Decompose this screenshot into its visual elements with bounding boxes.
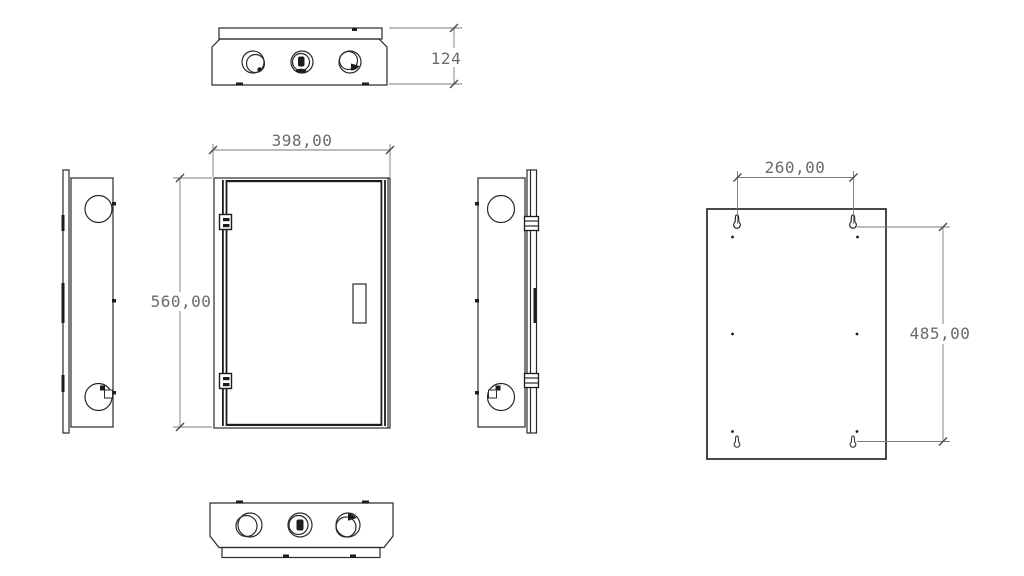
edge-tab <box>475 391 479 395</box>
dim-width: 398,00 <box>209 131 394 177</box>
dim-depth: 124 <box>389 24 463 88</box>
knockout-hole-right <box>336 513 360 537</box>
left-side-view <box>62 170 117 433</box>
side-hole-top <box>85 196 112 223</box>
drawing-canvas: 124 398,00 <box>0 0 1024 576</box>
keyhole-slot-bottom-right <box>850 436 856 447</box>
edge-tab <box>236 83 243 86</box>
knockout-hole-left <box>236 513 262 537</box>
dim-mounting-width: 260,00 <box>734 158 858 224</box>
handle-edge <box>534 288 537 323</box>
hinge-edge <box>62 215 65 231</box>
pilot-dot <box>731 236 734 239</box>
technical-drawing: 124 398,00 <box>0 0 1024 576</box>
front-view-case <box>214 178 390 428</box>
edge-tab <box>236 501 243 504</box>
dim-mounting-height-label: 485,00 <box>910 324 971 343</box>
top-view <box>212 28 387 86</box>
right-side-view <box>475 170 539 433</box>
door-handle <box>353 284 366 323</box>
keyhole-slot-top-left <box>734 215 741 228</box>
pilot-dot <box>856 430 859 433</box>
handle-edge <box>62 283 65 323</box>
dim-width-label: 398,00 <box>272 131 333 150</box>
dim-mounting-height: 485,00 <box>857 223 978 446</box>
side-hole-top <box>488 196 515 223</box>
knockout-hole-left <box>242 51 265 73</box>
door-hinge-bottom <box>220 374 232 389</box>
pilot-dot <box>731 333 734 336</box>
knockout-hole-middle <box>288 513 312 537</box>
door-hinge-top <box>220 215 232 230</box>
bottom-view-front-lip <box>222 548 380 558</box>
edge-tab <box>362 501 369 504</box>
edge-tab <box>362 83 369 86</box>
keyhole-slot-bottom-left <box>734 436 740 447</box>
dim-mounting-width-label: 260,00 <box>765 158 826 177</box>
lip-notch <box>283 555 289 558</box>
knockout-hole-middle <box>291 51 313 73</box>
front-view <box>214 178 390 428</box>
edge-tab <box>112 299 116 303</box>
flange-notch <box>352 28 357 31</box>
side-hole-bottom <box>85 384 113 411</box>
side-hole-bottom <box>488 384 515 411</box>
dim-height-label: 560,00 <box>151 292 212 311</box>
dim-depth-label: 124 <box>431 49 461 68</box>
edge-tab <box>475 202 479 206</box>
dim-height: 560,00 <box>147 174 213 431</box>
keyhole-slot-top-right <box>850 215 857 228</box>
bottom-view <box>210 501 393 558</box>
front-door <box>222 180 386 426</box>
hinge-edge <box>62 375 65 392</box>
top-view-rear-flange <box>219 28 382 39</box>
pilot-dot <box>731 430 734 433</box>
pilot-dot <box>856 236 859 239</box>
edge-tab <box>475 299 479 303</box>
lip-notch <box>350 555 356 558</box>
hinge-block-top <box>525 217 539 231</box>
side-body <box>478 178 525 427</box>
edge-tab <box>112 202 116 206</box>
back-panel-view <box>707 209 886 459</box>
pilot-dot <box>856 333 859 336</box>
knockout-hole-right <box>339 51 361 73</box>
hinge-block-bottom <box>525 374 539 388</box>
